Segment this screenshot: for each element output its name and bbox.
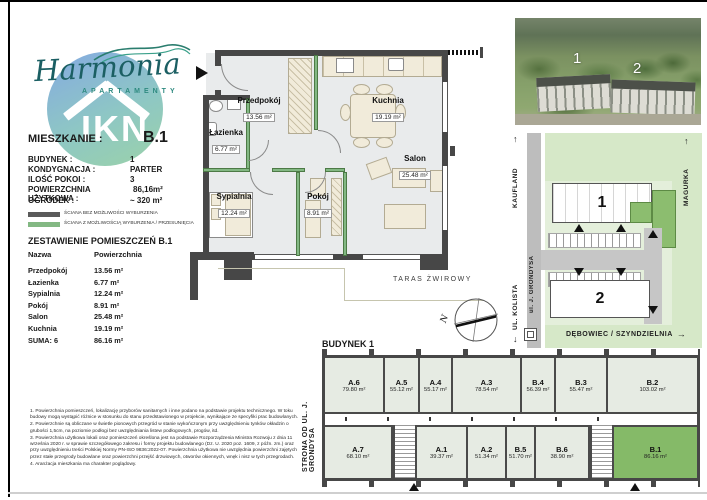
terrace-outline xyxy=(344,268,345,301)
room-table-header-name: Nazwa xyxy=(28,250,51,259)
sitemap-building-2: 2 xyxy=(550,280,650,318)
page-border-left xyxy=(8,0,10,497)
stairwell xyxy=(393,425,417,478)
page-border-top xyxy=(0,0,707,2)
dimension-ruler xyxy=(448,50,482,55)
detail-value-pokoje: 3 xyxy=(130,175,190,184)
brand-name: Harmonia xyxy=(33,46,191,88)
window-bottom-1 xyxy=(255,254,333,260)
detail-value-kondygnacja: PARTER xyxy=(130,165,190,174)
chair xyxy=(340,104,351,121)
unit-cell-a7: A.768.10 m² xyxy=(325,425,393,478)
stairwell xyxy=(590,425,614,478)
unit-cell-a4: A.455.17 m² xyxy=(420,358,453,414)
arrow-down-icon: ↓ xyxy=(513,334,518,344)
legend-swatch-fixed-wall xyxy=(28,212,60,217)
sitemap-unit-b1-highlight xyxy=(630,202,652,223)
room-label-sypialnia: Sypialnia 12.24 m² xyxy=(206,192,262,220)
unit-cell-b4: B.456.39 m² xyxy=(522,358,556,414)
building-plan: A.679.80 m² A.555.12 m² A.455.17 m² A.37… xyxy=(322,355,700,481)
entrance-marker-icon xyxy=(648,306,658,314)
wall-bottom-2 xyxy=(333,254,363,260)
detail-label-pokoje: ILOŚĆ POKOI : xyxy=(28,175,130,184)
legend-swatch-movable-wall xyxy=(28,222,60,227)
terrace-label: TARAS ŻWIROWY xyxy=(393,276,472,283)
sofa xyxy=(384,204,426,229)
legend-label-movable-wall: ŚCIANA Z MOŻLIWOŚCIĄ WYBURZENIA / PRZESU… xyxy=(64,221,194,226)
sitemap-label-magurka: MAGURKA xyxy=(683,150,690,206)
green-wall-hall-kitchen xyxy=(314,55,318,130)
unit-cell-a2: A.251.34 m² xyxy=(468,425,507,478)
building-entrance-icon xyxy=(409,483,419,491)
green-wall-divider-2 xyxy=(272,168,305,172)
room-label-lazienka: Łazienka 6.77 m² xyxy=(200,128,252,156)
unit-header-value: B.1 xyxy=(143,129,168,147)
wall-marker xyxy=(450,146,455,156)
chair xyxy=(376,137,393,148)
unit-cell-b5: B.551.70 m² xyxy=(507,425,536,478)
window-bottom-2 xyxy=(363,254,420,260)
footnote-2: 2. Powierzchnie są obliczane w świetle p… xyxy=(30,422,298,434)
table-row: Salon25.48 m² xyxy=(28,312,178,321)
entrance-marker-icon xyxy=(616,224,626,232)
sitemap-building2-label: 2 xyxy=(596,290,605,308)
photo-road xyxy=(515,114,701,125)
table-row: Przedpokój13.56 m² xyxy=(28,266,178,275)
room-label-salon: Salon 25.48 m² xyxy=(392,154,438,182)
table-row: Pokój8.91 m² xyxy=(28,301,178,310)
room-label-kuchnia: Kuchnia 19.19 m² xyxy=(362,96,414,124)
chair xyxy=(353,137,370,148)
building-plan-side-label: STRONA OD UL. J. GRONDYSA xyxy=(302,360,316,472)
arrow-up-icon: ↑ xyxy=(684,136,689,146)
table-total-row: SUMA: 686.16 m² xyxy=(28,336,178,345)
detail-label-budynek: BUDYNEK : xyxy=(28,155,130,164)
corridor xyxy=(345,417,635,421)
green-wall-divider-1 xyxy=(203,168,250,172)
wall-right-mid xyxy=(442,132,448,166)
aerial-photo: 1 2 xyxy=(515,18,701,125)
brand-subtitle: APARTAMENTY xyxy=(82,88,190,95)
dimension-ruler-end xyxy=(480,47,483,58)
photo-building-1 xyxy=(536,74,612,112)
compass-icon xyxy=(452,296,500,344)
entrance-arrow-icon xyxy=(196,66,208,80)
floorplan-brochure-page: { "brand": {"name": "Harmonia", "subtitl… xyxy=(0,0,707,500)
room-table-title: ZESTAWIENIE POMIESZCZEŃ B.1 xyxy=(28,236,172,246)
chair xyxy=(353,84,370,95)
compass-north-label: N xyxy=(439,314,451,325)
green-wall-pokoj-salon xyxy=(343,172,347,256)
wall-bottom-corner xyxy=(420,254,448,270)
green-wall-divider-3 xyxy=(325,168,345,172)
detail-value-ogrodek: ~ 320 m² xyxy=(130,196,190,205)
window-kitchen xyxy=(442,82,448,132)
sitemap-kiosk xyxy=(524,328,537,341)
table-row: Kuchnia19.19 m² xyxy=(28,324,178,333)
terrace-wall-v xyxy=(190,252,198,300)
table-row: Łazienka6.77 m² xyxy=(28,278,178,287)
unit-cell-a6: A.679.80 m² xyxy=(325,358,385,414)
sitemap-label-grondysa: ul. J. GRONDYSA xyxy=(529,228,535,313)
sitemap-kiosk-inner xyxy=(527,331,534,338)
unit-header-label: MIESZKANIE : xyxy=(28,133,103,145)
footnote-1: 1. Powierzchnia pomieszczeń, lokalizację… xyxy=(30,409,298,421)
wall-right-upper xyxy=(442,50,448,82)
room-label-pokoj: Pokój 8.91 m² xyxy=(293,192,343,220)
entrance-marker-icon xyxy=(616,268,626,276)
terrace-wall-block xyxy=(224,258,252,280)
unit-cell-b6: B.638.90 m² xyxy=(536,425,590,478)
sitemap-parking-row xyxy=(548,233,641,248)
detail-value-budynek: 1 xyxy=(130,155,190,164)
arrow-right-icon: → xyxy=(677,329,686,339)
terrace-outline xyxy=(218,268,345,269)
table-row: Sypialnia12.24 m² xyxy=(28,289,178,298)
photo-label-building2: 2 xyxy=(633,60,641,77)
unit-cell-a1: A.139.37 m² xyxy=(417,425,468,478)
sitemap-label-debowiec: DĘBOWIEC / SZYNDZIELNIA xyxy=(566,331,673,338)
entrance-marker-icon xyxy=(574,268,584,276)
photo-label-building1: 1 xyxy=(573,50,581,67)
room-table-header-area: Powierzchnia xyxy=(94,250,142,259)
building-plan-title: BUDYNEK 1 xyxy=(322,339,374,349)
arrow-up-icon: ↑ xyxy=(513,134,518,144)
unit-cell-b2: B.2103.02 m² xyxy=(608,358,697,414)
sitemap-label-kaufland: KAUFLAND xyxy=(512,148,519,208)
entrance-marker-icon xyxy=(648,230,658,238)
chair xyxy=(376,84,393,95)
detail-value-powierzchnia: 86,16m² xyxy=(133,185,193,194)
kitchen-sink xyxy=(388,58,404,71)
stove xyxy=(336,58,354,73)
hall-wardrobe xyxy=(288,58,312,134)
detail-label-ogrodek: OGRÓDEK : xyxy=(28,196,130,205)
legend-label-fixed-wall: ŚCIANA BEZ MOŻLIWOŚCI WYBURZENIA xyxy=(64,211,158,216)
unit-cell-b1-highlighted: B.186.16 m² xyxy=(614,425,697,478)
entrance-marker-icon xyxy=(574,224,584,232)
page-border-bottom xyxy=(8,492,707,494)
detail-label-kondygnacja: KONDYGNACJA : xyxy=(28,165,130,174)
footnotes: 1. Powierzchnia pomieszczeń, lokalizację… xyxy=(30,409,298,469)
unit-cell-a3: A.378.54 m² xyxy=(453,358,522,414)
sitemap-label-kolista: UL. KOLISTA xyxy=(512,262,519,330)
wall-left xyxy=(203,95,209,260)
footnote-4: 4. Aranżacja mieszkania ma charakter pog… xyxy=(30,462,298,468)
room-label-przedpokoj: Przedpokój 13.56 m² xyxy=(228,96,290,124)
sitemap-label-debowiec-row: DĘBOWIEC / SZYNDZIELNIA → xyxy=(566,329,686,339)
footnote-3: 3. Powierzchnia użytkowa lokali oraz pom… xyxy=(30,436,298,461)
balcony-ticks-bottom xyxy=(322,481,700,487)
room-table-body: Przedpokój13.56 m² Łazienka6.77 m² Sypia… xyxy=(28,266,178,347)
bathroom-sink xyxy=(209,100,223,112)
wall-top xyxy=(215,50,448,56)
unit-cell-a5: A.555.12 m² xyxy=(385,358,420,414)
building-entrance-icon xyxy=(630,483,640,491)
unit-cell-b3: B.355.47 m² xyxy=(556,358,608,414)
sitemap-driveway-h xyxy=(541,250,651,270)
window-salon xyxy=(442,166,448,230)
photo-building-2 xyxy=(610,80,695,116)
sitemap-building1-label: 1 xyxy=(598,194,607,212)
